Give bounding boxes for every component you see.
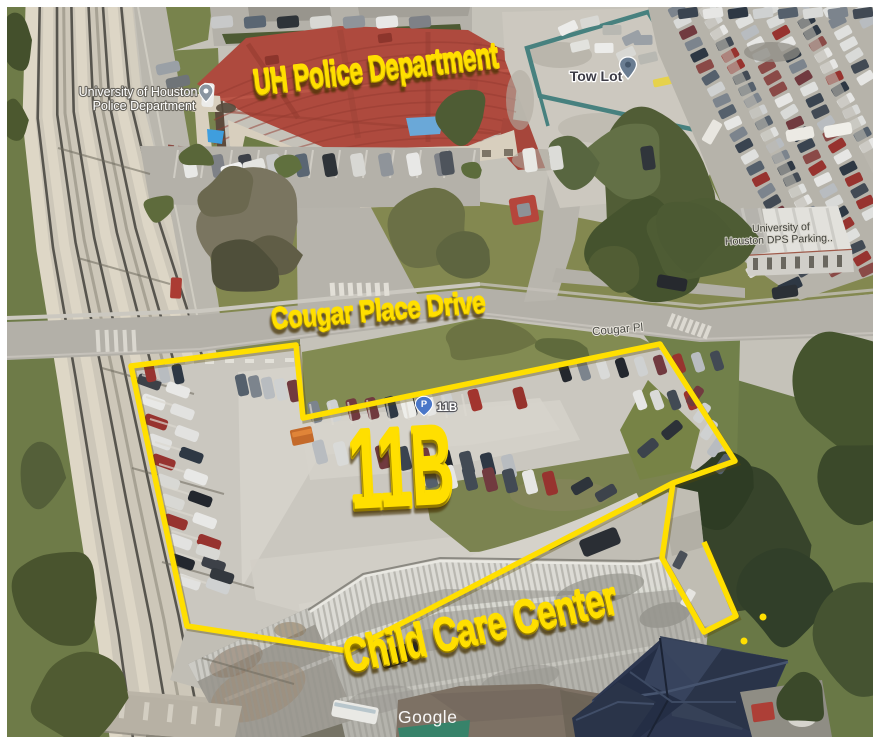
svg-text:Google: Google <box>398 707 457 727</box>
svg-text:Tow Lot: Tow Lot <box>570 68 623 84</box>
svg-text:11B: 11B <box>346 402 456 533</box>
svg-text:Police Department: Police Department <box>93 99 196 113</box>
svg-text:University of Houston: University of Houston <box>79 85 198 99</box>
